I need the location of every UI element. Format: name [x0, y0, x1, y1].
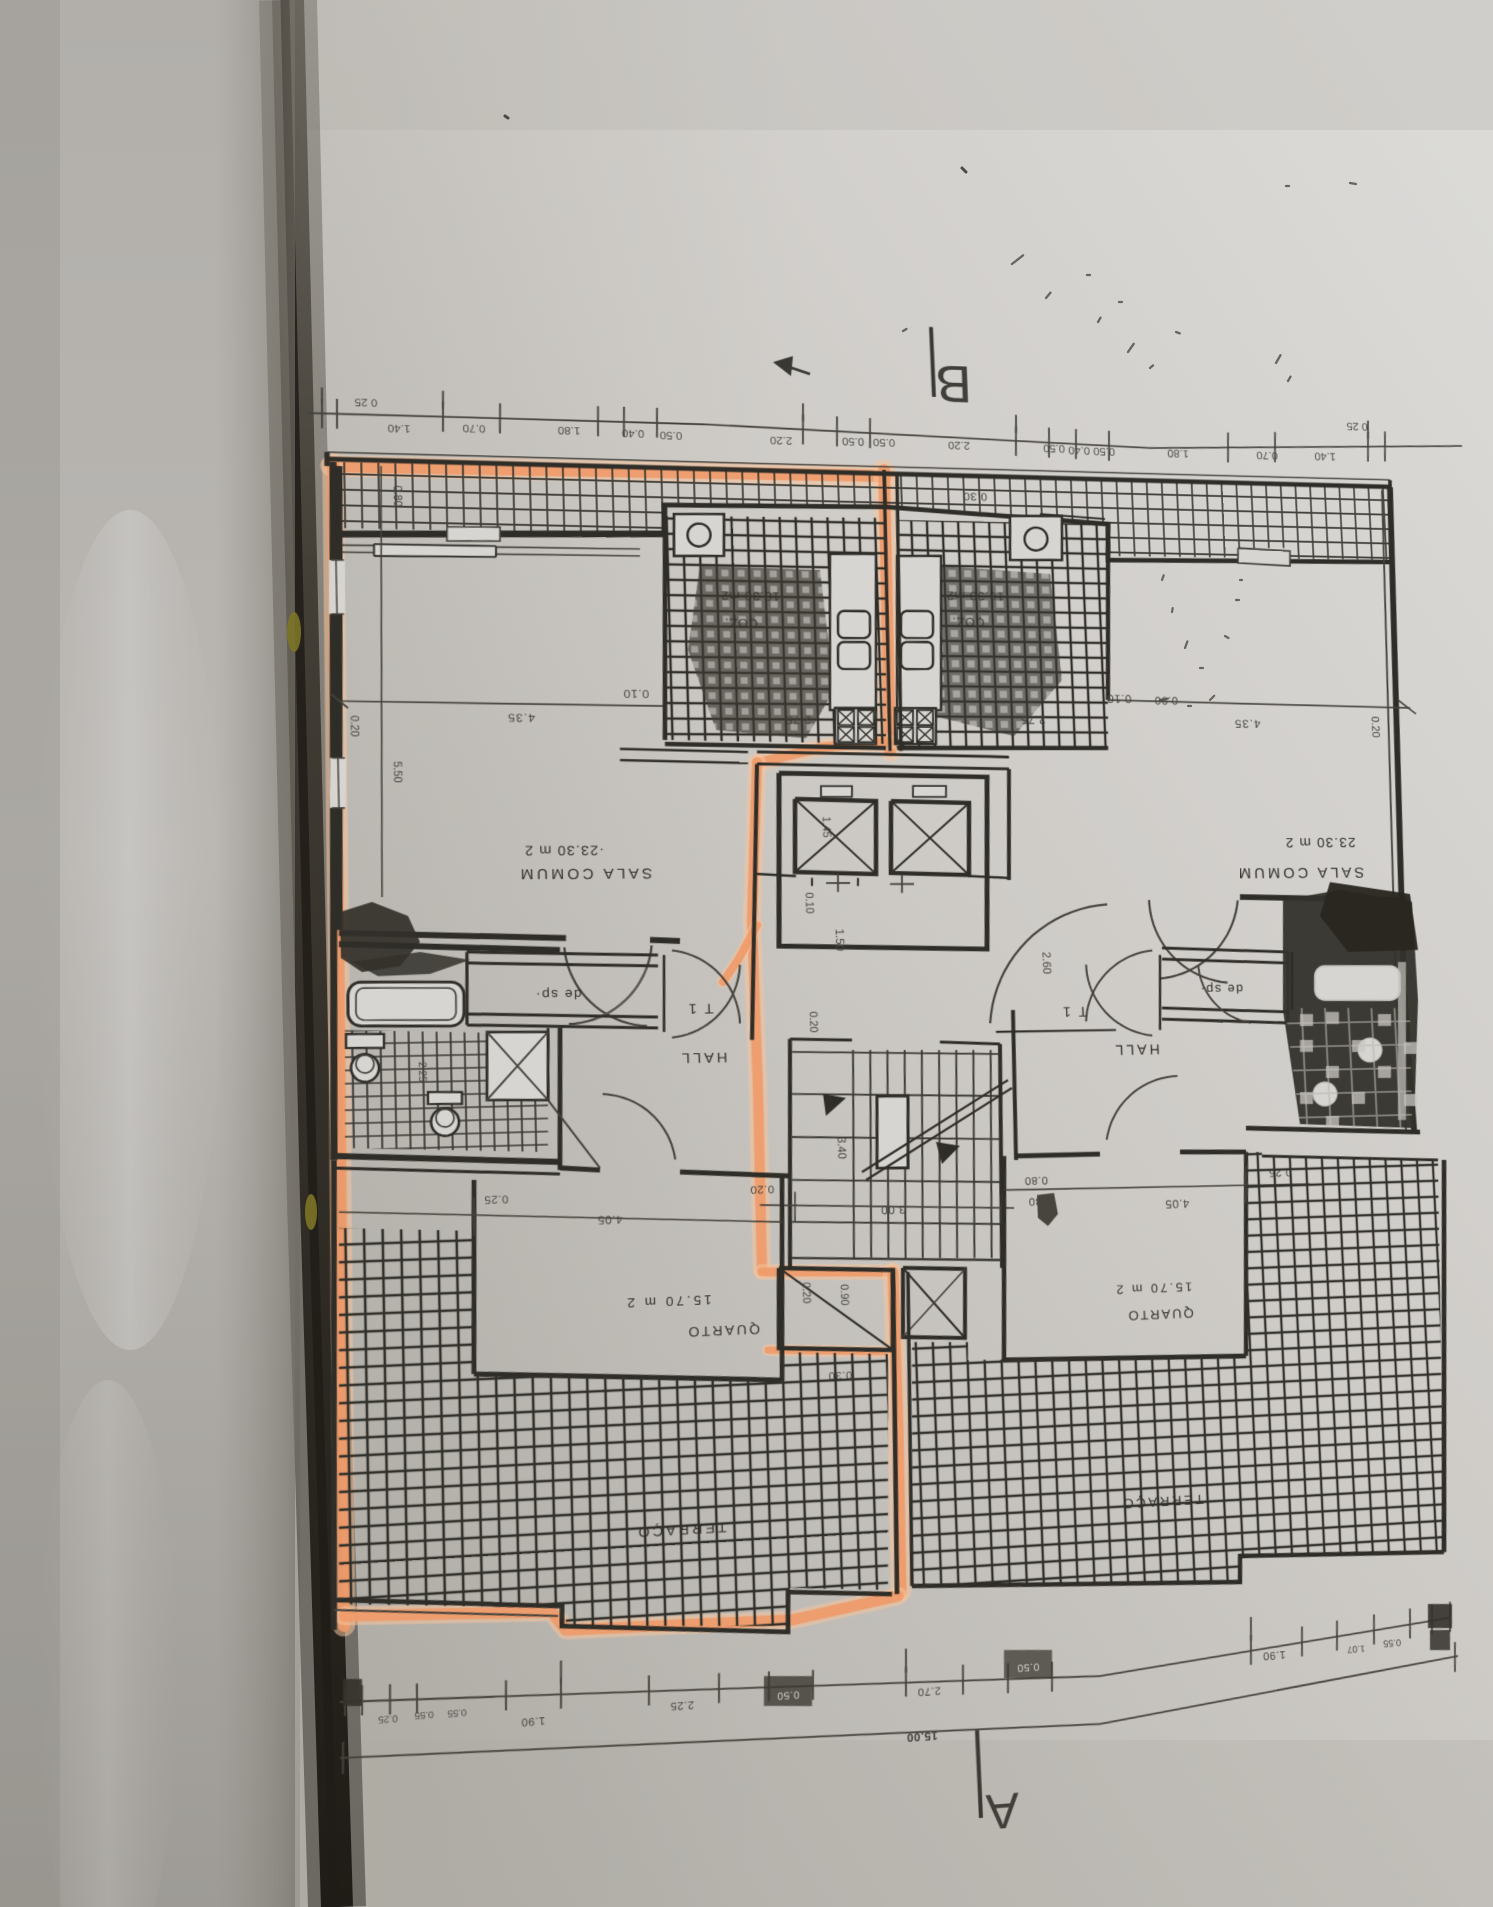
svg-text:0.55: 0.55	[414, 1709, 433, 1721]
svg-text:COZ.: COZ.	[951, 615, 984, 629]
svg-text:0.50: 0.50	[1043, 442, 1065, 455]
svg-text:T 1: T 1	[687, 1000, 714, 1016]
svg-text:COZ.: COZ.	[724, 616, 758, 630]
svg-text:0.20: 0.20	[800, 1282, 813, 1304]
svg-text:2.60: 2.60	[1040, 952, 1054, 975]
svg-text:TERRAÇO: TERRAÇO	[635, 1518, 727, 1539]
svg-text:2.75: 2.75	[1020, 713, 1045, 726]
svg-text:3.40: 3.40	[835, 1137, 849, 1160]
svg-text:QUARTO: QUARTO	[1126, 1306, 1194, 1324]
svg-text:16.30 m2: 16.30 m2	[720, 589, 780, 604]
svg-text:1.80: 1.80	[557, 424, 580, 437]
svg-text:1.80: 1.80	[1167, 447, 1189, 460]
svg-text:0 25: 0 25	[1346, 420, 1368, 433]
svg-text:1.45: 1.45	[820, 816, 833, 838]
svg-text:0.40: 0.40	[621, 427, 644, 440]
svg-text:0.50: 0.50	[659, 429, 682, 442]
svg-text:0 25: 0 25	[354, 396, 377, 408]
svg-text:16.30 m2: 16.30 m2	[946, 589, 1005, 604]
svg-text:·23.30 m 2: ·23.30 m 2	[524, 842, 604, 858]
svg-text:QUARTO: QUARTO	[686, 1322, 760, 1341]
svg-text:0.90: 0.90	[838, 1284, 850, 1306]
svg-text:1.40: 1.40	[1314, 450, 1336, 463]
svg-text:0.90: 0.90	[1154, 694, 1178, 707]
svg-text:HALL: HALL	[679, 1049, 728, 1065]
svg-text:de sp·: de sp·	[534, 987, 581, 1002]
svg-text:0.50: 0.50	[842, 435, 865, 448]
svg-text:2.25: 2.25	[670, 1698, 694, 1712]
svg-text:2.70: 2.70	[917, 1684, 941, 1697]
svg-text:1.90: 1.90	[521, 1714, 546, 1728]
svg-text:0.25: 0.25	[1268, 1166, 1292, 1180]
svg-text:4.05: 4.05	[597, 1213, 623, 1227]
svg-text:15.00: 15.00	[906, 1729, 938, 1744]
svg-text:15.70 m 2: 15.70 m 2	[624, 1292, 712, 1310]
svg-text:0.80: 0.80	[391, 485, 405, 507]
svg-text:0.10: 0.10	[1107, 692, 1132, 706]
svg-text:1.90: 1.90	[1262, 1648, 1285, 1661]
svg-text:0.50: 0.50	[1093, 445, 1115, 458]
svg-text:2.20: 2.20	[769, 434, 792, 447]
svg-text:0.20: 0.20	[348, 715, 361, 737]
svg-text:0.50: 0.50	[1017, 1660, 1040, 1673]
svg-text:3.00: 3.00	[880, 1203, 905, 1217]
svg-text:0.55: 0.55	[447, 1707, 466, 1719]
svg-text:4.35: 4.35	[1234, 717, 1261, 731]
svg-text:0.70: 0.70	[1256, 449, 1278, 462]
svg-text:0.80: 0.80	[1024, 1174, 1048, 1187]
svg-text:T 1: T 1	[1061, 1003, 1088, 1019]
svg-text:SALA COMUM: SALA COMUM	[517, 865, 652, 882]
svg-text:2.20: 2.20	[948, 439, 971, 452]
svg-text:5.50: 5.50	[391, 761, 404, 782]
svg-text:0.25: 0.25	[378, 1713, 398, 1725]
svg-text:0.20: 0.20	[1369, 716, 1382, 738]
svg-text:15.70 m 2: 15.70 m 2	[1114, 1280, 1193, 1297]
svg-text:4.35: 4.35	[507, 711, 535, 724]
svg-text:1.50: 1.50	[833, 929, 847, 952]
svg-text:B: B	[934, 354, 972, 413]
svg-text:0.70: 0.70	[463, 422, 486, 434]
svg-text:1.07: 1.07	[1347, 1642, 1366, 1654]
svg-text:0.40: 0.40	[1068, 444, 1090, 457]
svg-text:0.50: 0.50	[777, 1688, 800, 1702]
svg-text:0.10: 0.10	[623, 687, 649, 700]
svg-text:23.30 m 2: 23.30 m 2	[1284, 834, 1356, 849]
svg-text:4.05: 4.05	[1165, 1197, 1190, 1211]
svg-text:0.55: 0.55	[1383, 1637, 1402, 1649]
svg-text:0.20: 0.20	[807, 1011, 819, 1033]
svg-text:0.25: 0.25	[484, 1193, 509, 1206]
svg-text:A: A	[985, 1782, 1020, 1841]
svg-text:0.30: 0.30	[1028, 1195, 1052, 1208]
svg-text:0.30: 0.30	[963, 490, 988, 503]
svg-text:0.20: 0.20	[750, 1183, 775, 1195]
svg-text:0.50: 0.50	[872, 436, 895, 449]
svg-text:2.75: 2.75	[785, 713, 811, 726]
svg-text:0.10: 0.10	[803, 892, 816, 914]
svg-text:1.40: 1.40	[387, 422, 410, 434]
svg-text:2.25: 2.25	[416, 1062, 429, 1083]
svg-text:HALL: HALL	[1112, 1041, 1160, 1058]
svg-text:SALA COMUM: SALA COMUM	[1235, 864, 1364, 881]
